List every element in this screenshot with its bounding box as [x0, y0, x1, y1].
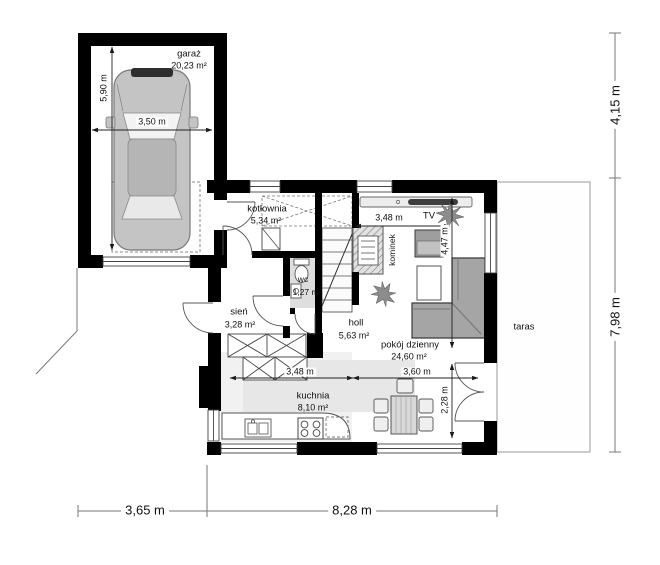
dim-right-main: 7,98 m [609, 293, 622, 341]
boiler-unit [262, 228, 280, 250]
door-wc [295, 314, 315, 334]
window [377, 444, 462, 453]
dim-garage-depth: 5,90 m [100, 72, 109, 104]
floor-plan: garaż 20,23 m² kotłownia 5,34 m² wc 1,27… [0, 0, 660, 565]
living-area: 24,60 m² [391, 353, 427, 362]
boiler-label: kotłownia [247, 204, 287, 214]
dim-overall-main: 8,28 m [328, 504, 376, 517]
tv-label: TV [423, 211, 435, 221]
hall-area: 5,63 m² [339, 332, 370, 341]
terrace-outline [497, 182, 590, 452]
dining-table [391, 396, 417, 434]
dim-living-width: 3,48 m [373, 214, 405, 223]
window [485, 213, 496, 273]
kitchen-area: 8,10 m² [298, 404, 329, 413]
dim-dining-width: 3,60 m [401, 368, 433, 377]
garage-door [103, 257, 190, 266]
dim-living-depth: 4,47 m [441, 225, 450, 257]
car-mirror-left [106, 117, 115, 128]
dim-garage-width: 3,50 m [136, 118, 168, 127]
stove [298, 418, 323, 439]
terrace-double-door [455, 363, 484, 421]
window [357, 181, 392, 192]
window [250, 181, 280, 192]
dim-overall-left: 3,65 m [121, 504, 169, 517]
fireplace [353, 226, 383, 274]
boiler-area: 5,34 m² [251, 217, 282, 226]
vestibule-area: 3,28 m² [225, 321, 256, 330]
plot-lines [36, 268, 77, 374]
car-mirror-right [189, 117, 198, 128]
garage-contents [92, 47, 212, 252]
coffee-table [417, 266, 441, 300]
dim-right-top: 4,15 m [609, 81, 622, 129]
entrance-door [183, 303, 213, 333]
kitchen-label: kuchnia [297, 391, 330, 401]
garage-area: 20,23 m² [171, 62, 207, 71]
wc-area: 1,27 m² [293, 288, 322, 297]
window [208, 410, 219, 441]
garage-label: garaż [177, 49, 201, 59]
fireplace-label: kominek [388, 234, 397, 266]
window [221, 444, 297, 453]
door-vestibule-hall [253, 296, 283, 326]
vestibule-label: sień [230, 307, 247, 317]
living-label: pokój dzienny [381, 340, 439, 350]
car [106, 68, 198, 250]
terrace-label: taras [513, 322, 534, 332]
dim-dining-depth: 2,28 m [441, 384, 450, 416]
hall-label: holl [349, 318, 364, 328]
kitchen-counter [222, 413, 350, 439]
toilet-tank [294, 259, 309, 265]
dim-kitchen-width: 3,48 m [284, 368, 316, 377]
wc-label: wc [298, 275, 308, 284]
